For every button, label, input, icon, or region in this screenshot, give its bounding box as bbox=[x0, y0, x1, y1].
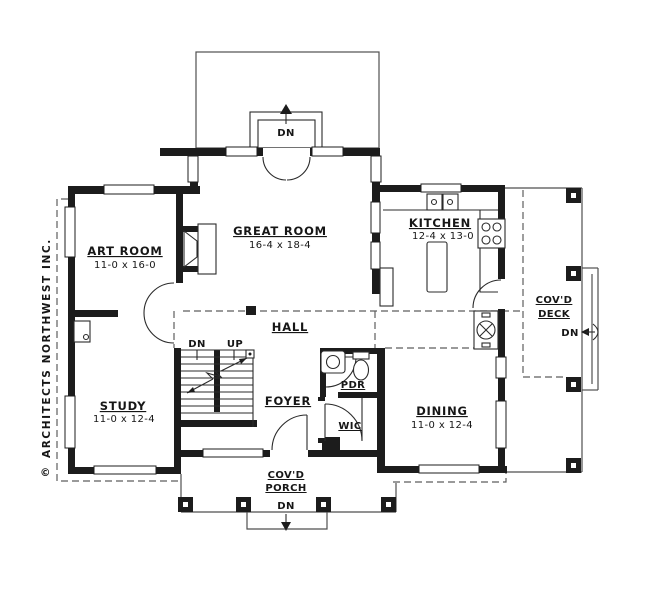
room-label-pdr: PDR bbox=[341, 380, 366, 391]
study-corner-fixture bbox=[74, 321, 90, 342]
room-dims-kitchen: 12-4 x 13-0 bbox=[412, 231, 474, 242]
porch-dn-label: DN bbox=[277, 501, 294, 512]
room-dims-study: 11-0 x 12-4 bbox=[93, 414, 155, 425]
powder-sink bbox=[321, 351, 345, 373]
kitchen-island bbox=[427, 242, 447, 292]
room-label-covd-porch-line1: COV'D bbox=[268, 470, 305, 481]
room-label-covd-deck-line2: DECK bbox=[538, 309, 571, 320]
rear-stoop: DN bbox=[196, 52, 379, 148]
room-label-art-room: ART ROOM bbox=[87, 244, 162, 258]
powder-toilet bbox=[353, 352, 369, 380]
floor-plan-page: { "colors": { "ink": "#1c1c1c", "thin_li… bbox=[0, 0, 665, 600]
room-label-dining: DINING bbox=[416, 404, 468, 418]
rear-stoop-dn-label: DN bbox=[277, 128, 294, 139]
room-dims-art-room: 11-0 x 16-0 bbox=[94, 260, 156, 271]
stairs-dn-label: DN bbox=[188, 339, 205, 350]
deck-dn-label: DN bbox=[561, 328, 578, 339]
copyright-symbol: © bbox=[40, 467, 52, 479]
bbq-grill bbox=[474, 311, 498, 349]
architect-credit-text: ARCHITECTS NORTHWEST INC. bbox=[41, 238, 53, 458]
room-dims-great-room: 16-4 x 18-4 bbox=[249, 240, 311, 251]
room-label-study: STUDY bbox=[100, 399, 147, 413]
room-label-great-room: GREAT ROOM bbox=[233, 224, 327, 238]
kitchen-range bbox=[478, 219, 505, 248]
room-label-covd-deck-line1: COV'D bbox=[536, 295, 573, 306]
room-dims-dining: 11-0 x 12-4 bbox=[411, 420, 473, 431]
architect-credit: © ARCHITECTS NORTHWEST INC. bbox=[40, 238, 53, 479]
floor-plan-canvas: DN bbox=[0, 0, 665, 600]
porch-dn-arrow-icon bbox=[281, 522, 291, 531]
room-label-kitchen: KITCHEN bbox=[409, 216, 471, 230]
room-label-wic: WIC bbox=[338, 421, 361, 432]
room-label-foyer: FOYER bbox=[265, 394, 311, 408]
room-label-hall: HALL bbox=[272, 320, 308, 334]
kitchen-sink bbox=[427, 194, 458, 210]
stairs-up-label: UP bbox=[227, 339, 243, 350]
room-label-covd-porch-line2: PORCH bbox=[265, 483, 306, 494]
covered-deck bbox=[505, 188, 598, 473]
